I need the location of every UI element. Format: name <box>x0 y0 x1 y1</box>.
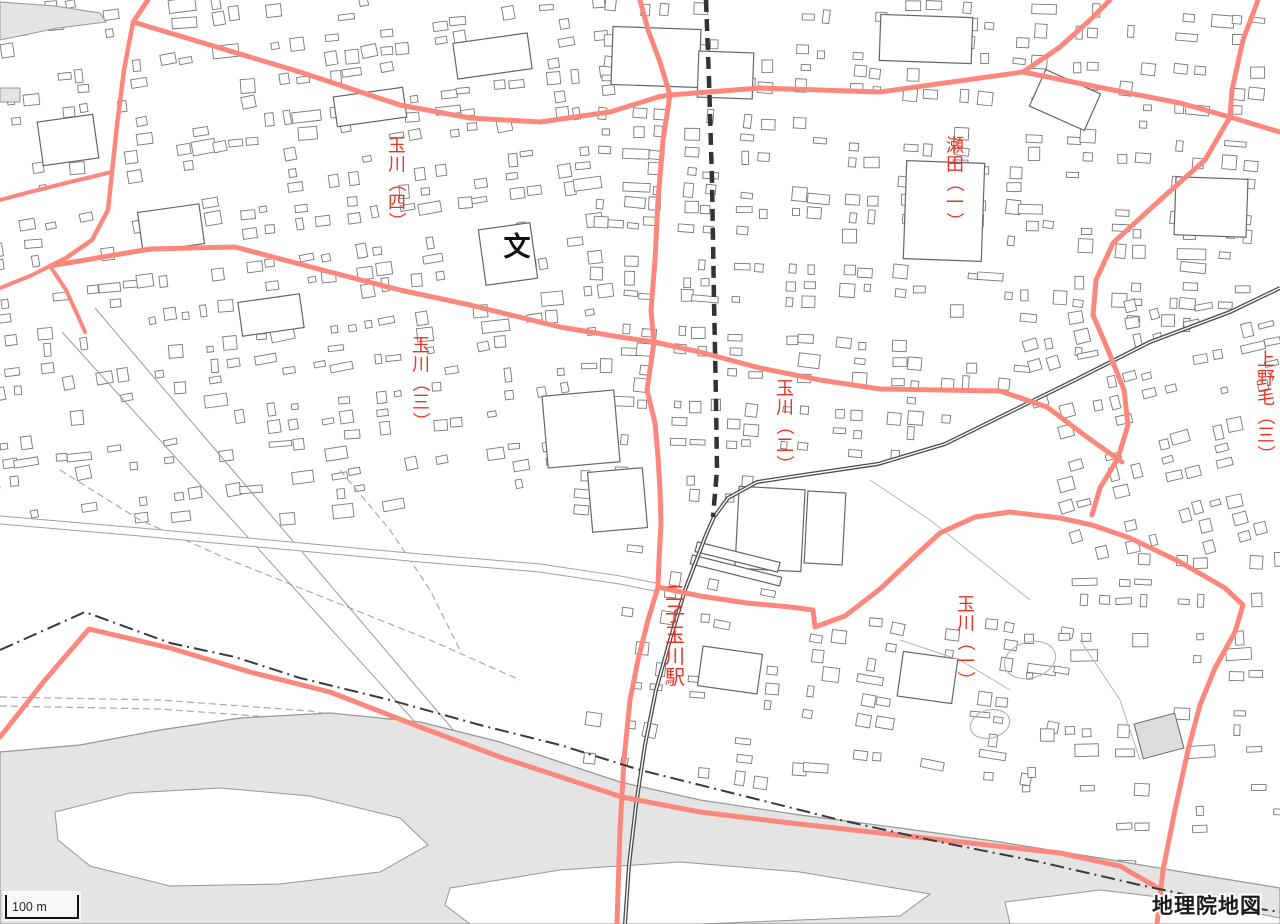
label-tamagawa-3: 玉川（三） <box>411 335 431 430</box>
label-seta-1-char: （ <box>945 174 965 192</box>
large-building <box>542 390 620 468</box>
label-seta-1: 瀬田（一） <box>945 135 965 230</box>
scale-bar-label: 100 m <box>12 900 47 914</box>
label-tamagawa-2-char: 川 <box>776 397 794 417</box>
label-tamagawa-3-char: ） <box>411 412 431 430</box>
label-seta-1-char: 一 <box>946 192 964 212</box>
label-futako-tamagawa-station-char: 玉 <box>665 625 685 647</box>
label-kaminoge-3-char: （ <box>1256 407 1276 425</box>
label-tamagawa-1: 玉川（一） <box>956 594 976 689</box>
label-tamagawa-4-char: ） <box>387 212 407 230</box>
label-tamagawa-2-char: 玉 <box>776 378 794 398</box>
park-path-1 <box>60 470 520 680</box>
label-futako-tamagawa-station-char: 子 <box>665 604 685 626</box>
label-tamagawa-1-char: （ <box>956 633 976 651</box>
label-tamagawa-3-char: （ <box>411 374 431 392</box>
large-building <box>903 161 984 262</box>
label-futako-tamagawa-station-char: 駅 <box>665 667 685 689</box>
large-building <box>37 114 99 165</box>
gray-building <box>1134 713 1184 759</box>
label-seta-1-char: ） <box>945 212 965 230</box>
large-building <box>698 646 763 694</box>
label-tamagawa-4-char: （ <box>387 174 407 192</box>
label-kaminoge-3-char: 上 <box>1257 349 1275 369</box>
nogawa-river <box>0 2 106 40</box>
label-tamagawa-4-char: 四 <box>388 192 406 212</box>
large-building <box>1174 177 1248 237</box>
label-tamagawa-1-char: ） <box>956 671 976 689</box>
large-building <box>138 204 205 252</box>
large-building <box>897 651 958 703</box>
school-symbol: 文 <box>504 231 532 262</box>
large-building <box>587 468 647 533</box>
label-tamagawa-3-char: 三 <box>412 392 430 412</box>
label-kaminoge-3-char: 野 <box>1257 368 1275 388</box>
road-west-spur2 <box>0 266 50 288</box>
label-tamagawa-1-char: 玉 <box>957 594 975 614</box>
road-west-spur1 <box>0 172 112 200</box>
label-tamagawa-4: 玉川（四） <box>387 135 407 230</box>
large-building <box>804 491 846 565</box>
label-tamagawa-4-char: 玉 <box>388 135 406 155</box>
label-kaminoge-3-char: 毛 <box>1257 387 1275 407</box>
major-white-roads-layer <box>0 520 655 587</box>
map-viewport[interactable]: 玉川（四）玉川（三）玉川（二）瀬田（一）上野毛（三）玉川（一）二子玉川駅 文 1… <box>0 0 1280 924</box>
label-kaminoge-3-char: ） <box>1256 445 1276 463</box>
label-seta-1-char: 田 <box>946 154 964 174</box>
scale-bar: 100 m <box>3 891 81 921</box>
large-building <box>238 294 304 336</box>
label-tamagawa-2-char: （ <box>775 417 795 435</box>
map-symbols-layer: 文 <box>504 231 532 262</box>
pond <box>0 88 20 102</box>
label-futako-tamagawa-station-char: 二 <box>665 583 685 605</box>
label-kaminoge-3-char: 三 <box>1257 425 1275 445</box>
label-tamagawa-2-char: ） <box>775 455 795 473</box>
label-tamagawa-4-char: 川 <box>388 154 406 174</box>
label-futako-tamagawa-station-char: 川 <box>665 646 685 668</box>
label-tamagawa-3-char: 川 <box>412 354 430 374</box>
label-tamagawa-3-char: 玉 <box>412 335 430 355</box>
label-futako-tamagawa-station: 二子玉川駅 <box>665 583 685 689</box>
attribution-gsi-maps[interactable]: 地理院地図 <box>1152 894 1262 918</box>
label-tamagawa-2-char: 二 <box>776 435 794 455</box>
label-kaminoge-3: 上野毛（三） <box>1256 349 1276 463</box>
park-layer <box>870 480 1140 760</box>
map-canvas[interactable]: 玉川（四）玉川（三）玉川（二）瀬田（一）上野毛（三）玉川（一）二子玉川駅 文 1… <box>0 0 1280 924</box>
label-tamagawa-1-char: 川 <box>957 613 975 633</box>
park-path <box>870 480 1030 600</box>
label-tamagawa-2: 玉川（二） <box>775 378 795 473</box>
label-tamagawa-1-char: 一 <box>957 651 975 671</box>
large-building <box>879 14 973 63</box>
label-seta-1-char: 瀬 <box>946 135 964 155</box>
